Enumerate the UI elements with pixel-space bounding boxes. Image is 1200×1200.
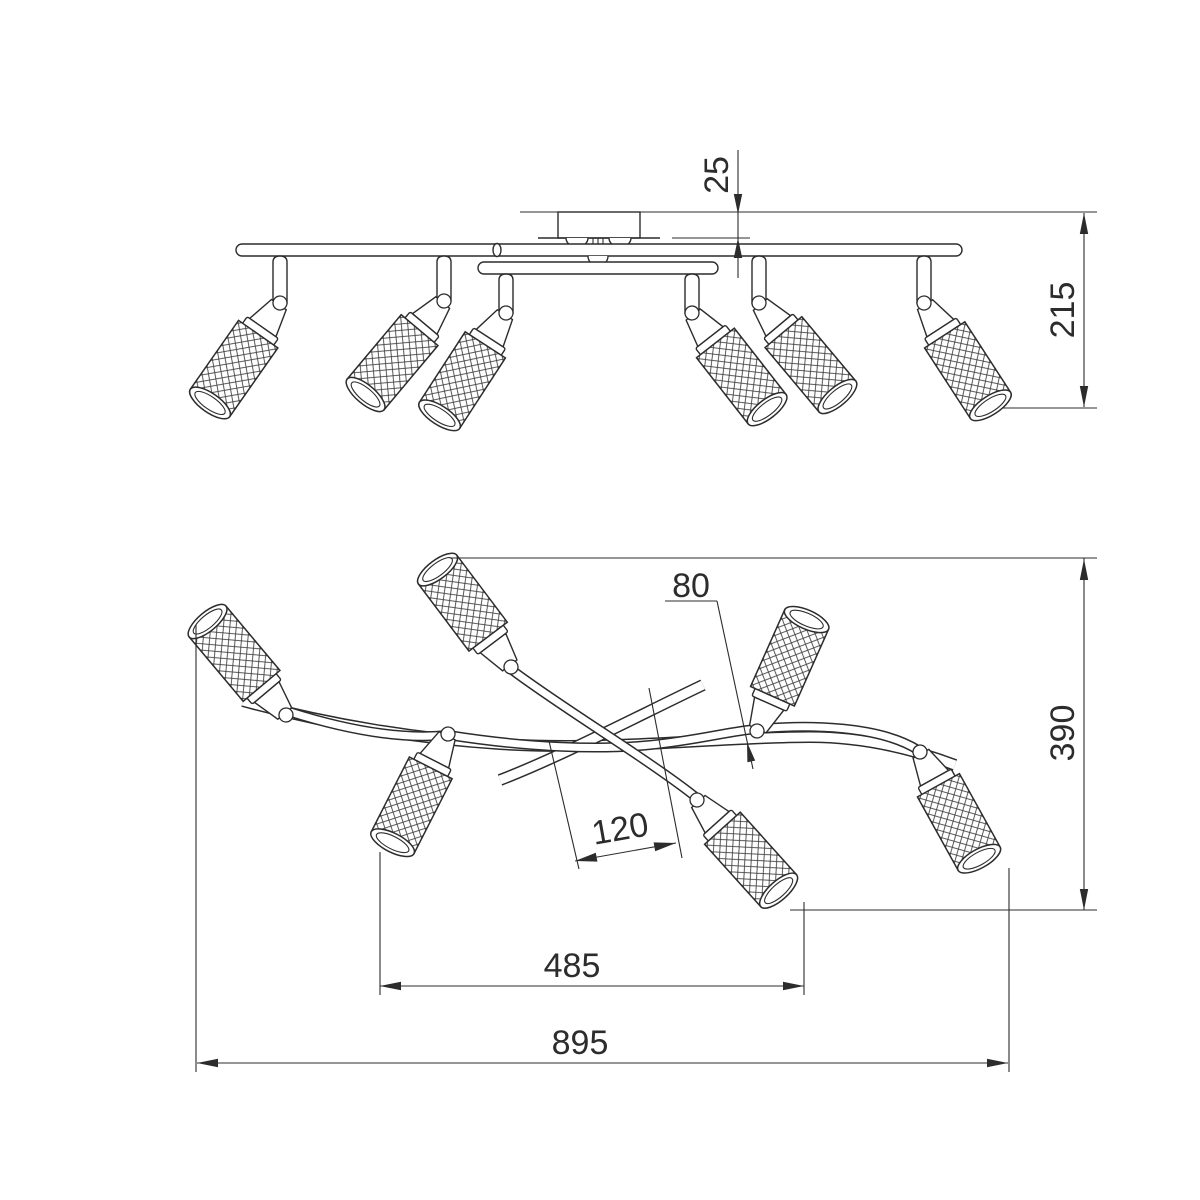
dimension-215: 215 xyxy=(1003,213,1097,408)
dim-label-120: 120 xyxy=(589,806,651,853)
dim-label-485: 485 xyxy=(544,947,601,985)
spot-lamp xyxy=(413,548,535,687)
main-bar xyxy=(236,244,962,256)
canopy-box xyxy=(558,212,640,238)
dim-label-25: 25 xyxy=(698,156,736,194)
spot-lamp xyxy=(185,284,304,425)
bar-joint xyxy=(493,244,501,257)
rail-diagonal xyxy=(512,670,698,799)
spot-lamp xyxy=(674,779,802,914)
spot-lamp xyxy=(183,599,309,736)
side-view: 25 215 xyxy=(185,150,1097,436)
drawing-canvas: 25 215 xyxy=(0,0,1200,1200)
plan-view: 80 390 120 xyxy=(183,548,1097,1072)
dim-label-390: 390 xyxy=(1044,705,1082,762)
dimension-25: 25 xyxy=(672,150,750,278)
spot-lamp xyxy=(900,284,1016,426)
dim-label-80: 80 xyxy=(672,567,710,605)
dim-label-215: 215 xyxy=(1044,282,1082,339)
second-bar xyxy=(478,262,718,274)
technical-drawing: 25 215 xyxy=(0,0,1200,1200)
dim-label-895: 895 xyxy=(552,1024,609,1062)
